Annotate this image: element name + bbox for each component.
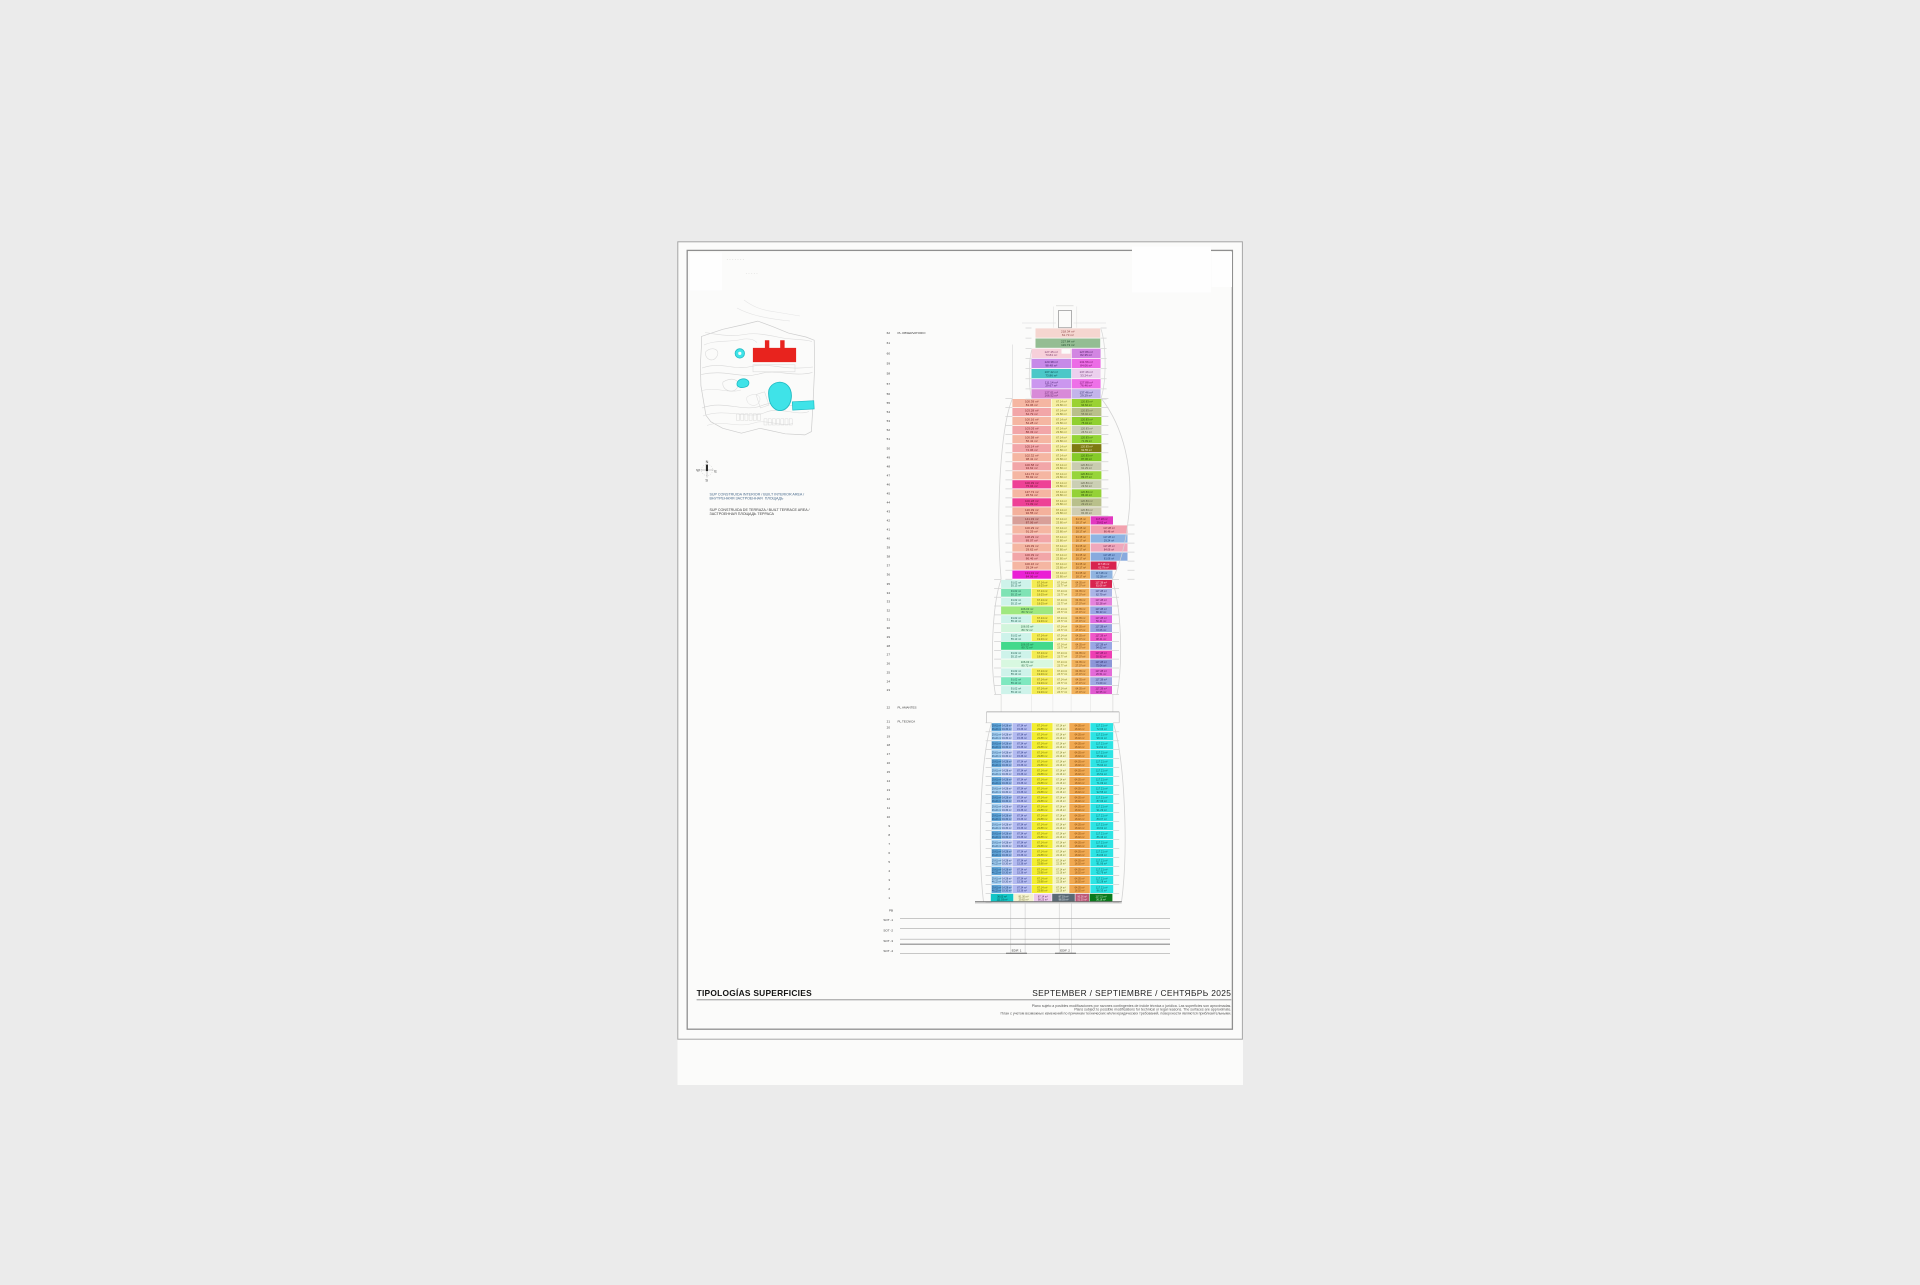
svg-text:14: 14 bbox=[887, 779, 891, 783]
svg-text:18.02 m²: 18.02 m² bbox=[1075, 737, 1085, 740]
svg-text:14.28 m²: 14.28 m² bbox=[1002, 752, 1012, 755]
svg-text:64.35 m²: 64.35 m² bbox=[1075, 734, 1085, 737]
svg-text:87.34 m²: 87.34 m² bbox=[1017, 752, 1027, 755]
svg-text:87.34 m²: 87.34 m² bbox=[1017, 779, 1027, 782]
svg-text:22.16 m²: 22.16 m² bbox=[1056, 800, 1066, 803]
svg-text:27.07 m²: 27.07 m² bbox=[1075, 664, 1085, 667]
svg-text:87.34 m²: 87.34 m² bbox=[1017, 877, 1027, 880]
svg-text:64.35 m²: 64.35 m² bbox=[1075, 824, 1085, 827]
svg-text:36.03 m²: 36.03 m² bbox=[997, 895, 1007, 898]
svg-text:64.35 m²: 64.35 m² bbox=[1075, 806, 1085, 809]
svg-text:29.61 m²: 29.61 m² bbox=[992, 770, 1002, 773]
svg-text:22: 22 bbox=[887, 706, 891, 710]
svg-text:18.02 m²: 18.02 m² bbox=[1075, 836, 1085, 839]
svg-text:64.35 m²: 64.35 m² bbox=[1075, 652, 1085, 655]
svg-text:47: 47 bbox=[887, 473, 891, 477]
svg-text:27.07 m²: 27.07 m² bbox=[1075, 638, 1085, 641]
svg-text:14.28 m²: 14.28 m² bbox=[1002, 806, 1012, 809]
svg-text:15.36 m²: 15.36 m² bbox=[1017, 764, 1027, 767]
svg-text:PL.AMANTES: PL.AMANTES bbox=[898, 706, 917, 710]
svg-text:46.22 m²: 46.22 m² bbox=[992, 728, 1002, 731]
svg-text:EDIF. 1: EDIF. 1 bbox=[1012, 949, 1022, 953]
svg-text:91.29 m²: 91.29 m² bbox=[1026, 529, 1038, 533]
svg-text:64.35 m²: 64.35 m² bbox=[1075, 725, 1085, 728]
svg-text:22.16 m²: 22.16 m² bbox=[1056, 872, 1066, 875]
svg-text:22.16 m²: 22.16 m² bbox=[1056, 791, 1066, 794]
svg-text:87.34 m²: 87.34 m² bbox=[1017, 806, 1027, 809]
svg-text:14.28 m²: 14.28 m² bbox=[1002, 788, 1012, 791]
svg-text:87.34 m²: 87.34 m² bbox=[1017, 859, 1027, 862]
svg-text:80.72 m²: 80.72 m² bbox=[1021, 646, 1032, 650]
svg-text:15.36 m²: 15.36 m² bbox=[1017, 827, 1027, 830]
svg-text:67.14 m²: 67.14 m² bbox=[1056, 859, 1066, 862]
svg-text:23.77 m²: 23.77 m² bbox=[1057, 620, 1067, 623]
svg-text:46.22 m²: 46.22 m² bbox=[992, 863, 1002, 866]
svg-text:29.61 m²: 29.61 m² bbox=[992, 815, 1002, 818]
svg-text:67.14 m²: 67.14 m² bbox=[1056, 761, 1066, 764]
svg-text:15.36 m²: 15.36 m² bbox=[1017, 755, 1027, 758]
svg-text:64.35 m²: 64.35 m² bbox=[1075, 815, 1085, 818]
svg-text:18.02 m²: 18.02 m² bbox=[1075, 827, 1085, 830]
svg-text:19.30 m²: 19.30 m² bbox=[1002, 800, 1012, 803]
svg-text:27.07 m²: 27.07 m² bbox=[1075, 682, 1085, 685]
svg-text:64.35 m²: 64.35 m² bbox=[1075, 761, 1085, 764]
svg-text:61.73 m²: 61.73 m² bbox=[1062, 333, 1074, 337]
svg-text:27.07 m²: 27.07 m² bbox=[1075, 691, 1085, 694]
svg-text:·····: ····· bbox=[745, 269, 758, 278]
svg-text:14.28 m²: 14.28 m² bbox=[1002, 797, 1012, 800]
svg-text:92.55 m²: 92.55 m² bbox=[1026, 511, 1038, 515]
svg-text:64.35 m²: 64.35 m² bbox=[1075, 851, 1085, 854]
svg-text:29.61 m²: 29.61 m² bbox=[992, 824, 1002, 827]
svg-text:PL.OBSERVATORIO: PL.OBSERVATORIO bbox=[898, 331, 927, 335]
svg-text:29.61 m²: 29.61 m² bbox=[992, 743, 1002, 746]
svg-text:67.14 m²: 67.14 m² bbox=[1056, 725, 1066, 728]
svg-text:64.35 m²: 64.35 m² bbox=[1075, 670, 1085, 673]
svg-text:46.22 m²: 46.22 m² bbox=[992, 755, 1002, 758]
svg-text:46.22 m²: 46.22 m² bbox=[992, 764, 1002, 767]
svg-text:19: 19 bbox=[887, 734, 891, 738]
svg-text:22.16 m²: 22.16 m² bbox=[1056, 845, 1066, 848]
svg-text:SOT -4: SOT -4 bbox=[883, 949, 893, 953]
svg-text:67.14 m²: 67.14 m² bbox=[1057, 661, 1067, 664]
svg-text:29.61 m²: 29.61 m² bbox=[992, 734, 1002, 737]
svg-text:64.35 m²: 64.35 m² bbox=[1075, 859, 1085, 862]
svg-text:67.14 m²: 67.14 m² bbox=[1057, 643, 1067, 646]
svg-text:PL.TECNICA: PL.TECNICA bbox=[898, 719, 916, 723]
svg-text:26.51 m²: 26.51 m² bbox=[1026, 493, 1038, 497]
svg-text:67.14 m²: 67.14 m² bbox=[1056, 752, 1066, 755]
svg-text:87.34 m²: 87.34 m² bbox=[1017, 842, 1027, 845]
svg-text:18.02 m²: 18.02 m² bbox=[1075, 764, 1085, 767]
svg-text:29.61 m²: 29.61 m² bbox=[992, 779, 1002, 782]
svg-text:14.28 m²: 14.28 m² bbox=[1002, 761, 1012, 764]
svg-text:15.36 m²: 15.36 m² bbox=[1017, 818, 1027, 821]
svg-text:29.61 m²: 29.61 m² bbox=[992, 752, 1002, 755]
svg-text:67.14 m²: 67.14 m² bbox=[1056, 779, 1066, 782]
svg-text:117.21 m²: 117.21 m² bbox=[1095, 895, 1106, 898]
svg-text:64.35 m²: 64.35 m² bbox=[1075, 886, 1085, 889]
svg-text:67.14 m²: 67.14 m² bbox=[1056, 797, 1066, 800]
svg-text:64.35 m²: 64.35 m² bbox=[1075, 617, 1085, 620]
svg-text:17: 17 bbox=[887, 752, 891, 756]
svg-text:14.28 m²: 14.28 m² bbox=[1002, 725, 1012, 728]
svg-text:29.67 m²: 29.67 m² bbox=[1045, 384, 1057, 388]
svg-text:SEPTEMBER / SEPTIEMBRE / СЕНТЯ: SEPTEMBER / SEPTIEMBRE / СЕНТЯБРЬ 2025 bbox=[1032, 988, 1231, 998]
svg-text:22.16 m²: 22.16 m² bbox=[1056, 755, 1066, 758]
svg-text:19.30 m²: 19.30 m² bbox=[1002, 737, 1012, 740]
svg-text:98.41 m²: 98.41 m² bbox=[1026, 457, 1038, 461]
svg-text:13: 13 bbox=[887, 788, 891, 792]
svg-text:18.02 m²: 18.02 m² bbox=[1075, 755, 1085, 758]
svg-text:57: 57 bbox=[887, 382, 891, 386]
svg-text:55.92 m²: 55.92 m² bbox=[1026, 475, 1038, 479]
svg-text:46.22 m²: 46.22 m² bbox=[992, 809, 1002, 812]
svg-text:19.30 m²: 19.30 m² bbox=[1002, 728, 1012, 731]
svg-text:67.14 m²: 67.14 m² bbox=[1057, 635, 1067, 638]
svg-text:14.28 m²: 14.28 m² bbox=[1002, 734, 1012, 737]
svg-text:119.73 m²: 119.73 m² bbox=[1061, 343, 1074, 347]
svg-text:46: 46 bbox=[887, 482, 891, 486]
svg-text:80.72 m²: 80.72 m² bbox=[1021, 610, 1032, 614]
svg-text:21: 21 bbox=[887, 719, 891, 723]
svg-text:49: 49 bbox=[887, 455, 891, 459]
svg-text:19.30 m²: 19.30 m² bbox=[1002, 791, 1012, 794]
svg-text:59: 59 bbox=[887, 362, 891, 366]
svg-text:67.14 m²: 67.14 m² bbox=[1056, 851, 1066, 854]
svg-text:ЗАСТРОЕННАЯ ПЛОЩАДЬ ТЕРРАСА: ЗАСТРОЕННАЯ ПЛОЩАДЬ ТЕРРАСА bbox=[710, 512, 775, 516]
svg-text:19.30 m²: 19.30 m² bbox=[1002, 827, 1012, 830]
svg-text:64.35 m²: 64.35 m² bbox=[1075, 752, 1085, 755]
svg-text:34: 34 bbox=[887, 591, 891, 595]
svg-text:14.28 m²: 14.28 m² bbox=[1002, 770, 1012, 773]
svg-text:15.36 m²: 15.36 m² bbox=[1017, 863, 1027, 866]
svg-text:46.22 m²: 46.22 m² bbox=[992, 791, 1002, 794]
svg-text:E: E bbox=[714, 469, 717, 473]
svg-text:18.02 m²: 18.02 m² bbox=[1075, 845, 1085, 848]
svg-text:14.28 m²: 14.28 m² bbox=[1002, 833, 1012, 836]
svg-text:67.14 m²: 67.14 m² bbox=[1056, 788, 1066, 791]
svg-text:31: 31 bbox=[887, 617, 891, 621]
svg-text:41: 41 bbox=[887, 528, 891, 532]
svg-text:23.77 m²: 23.77 m² bbox=[1057, 594, 1067, 597]
svg-text:29.61 m²: 29.61 m² bbox=[992, 761, 1002, 764]
svg-text:25: 25 bbox=[887, 670, 891, 674]
svg-text:19.30 m²: 19.30 m² bbox=[1002, 764, 1012, 767]
svg-text:23.77 m²: 23.77 m² bbox=[1057, 629, 1067, 632]
svg-text:18.02 m²: 18.02 m² bbox=[1075, 881, 1085, 884]
svg-text:73.86 m²: 73.86 m² bbox=[1045, 373, 1057, 377]
svg-text:SUP CONSTRUIDA DE TERRAZA / BU: SUP CONSTRUIDA DE TERRAZA / BUILT TERRAC… bbox=[710, 508, 811, 512]
svg-text:64.35 m²: 64.35 m² bbox=[1075, 833, 1085, 836]
svg-text:46.22 m²: 46.22 m² bbox=[992, 854, 1002, 857]
svg-text:64.35 m²: 64.35 m² bbox=[1075, 626, 1085, 629]
svg-text:67.14 m²: 67.14 m² bbox=[1057, 670, 1067, 673]
svg-text:90.26 m²: 90.26 m² bbox=[1077, 895, 1087, 898]
svg-text:14.28 m²: 14.28 m² bbox=[1002, 877, 1012, 880]
svg-text:29.61 m²: 29.61 m² bbox=[992, 806, 1002, 809]
svg-text:53: 53 bbox=[887, 419, 891, 423]
svg-text:64.35 m²: 64.35 m² bbox=[1075, 770, 1085, 773]
svg-text:23.77 m²: 23.77 m² bbox=[1057, 673, 1067, 676]
svg-text:15.36 m²: 15.36 m² bbox=[1017, 872, 1027, 875]
svg-text:61: 61 bbox=[887, 341, 891, 345]
svg-text:18.02 m²: 18.02 m² bbox=[1075, 800, 1085, 803]
svg-text:14.28 m²: 14.28 m² bbox=[1002, 859, 1012, 862]
svg-text:67.14 m²: 67.14 m² bbox=[1057, 688, 1067, 691]
svg-text:86.33 m²: 86.33 m² bbox=[1026, 430, 1038, 434]
svg-text:SOT -3: SOT -3 bbox=[883, 939, 893, 943]
svg-text:23.77 m²: 23.77 m² bbox=[1057, 691, 1067, 694]
svg-text:23.77 m²: 23.77 m² bbox=[1057, 602, 1067, 605]
svg-text:46.22 m²: 46.22 m² bbox=[992, 836, 1002, 839]
svg-text:18.02 m²: 18.02 m² bbox=[1075, 863, 1085, 866]
svg-text:84.06 m²: 84.06 m² bbox=[1080, 363, 1092, 367]
svg-text:TIPOLOGÍAS SUPERFICIES: TIPOLOGÍAS SUPERFICIES bbox=[697, 987, 812, 998]
svg-text:54: 54 bbox=[887, 410, 891, 414]
svg-text:67.14 m²: 67.14 m² bbox=[1057, 652, 1067, 655]
svg-text:87.34 m²: 87.34 m² bbox=[1017, 815, 1027, 818]
svg-text:27.07 m²: 27.07 m² bbox=[1075, 594, 1085, 597]
svg-text:64.35 m²: 64.35 m² bbox=[1075, 877, 1085, 880]
svg-text:19.30 m²: 19.30 m² bbox=[1002, 773, 1012, 776]
svg-text:80.72 m²: 80.72 m² bbox=[1021, 628, 1032, 632]
svg-text:18: 18 bbox=[887, 743, 891, 747]
svg-text:46.22 m²: 46.22 m² bbox=[992, 872, 1002, 875]
svg-text:19.30 m²: 19.30 m² bbox=[1002, 809, 1012, 812]
svg-text:14.28 m²: 14.28 m² bbox=[1002, 815, 1012, 818]
svg-text:29.61 m²: 29.61 m² bbox=[992, 842, 1002, 845]
svg-text:166.52 m²: 166.52 m² bbox=[1045, 394, 1059, 398]
svg-text:98.48 m²: 98.48 m² bbox=[1045, 363, 1057, 367]
svg-text:67.14 m²: 67.14 m² bbox=[1057, 617, 1067, 620]
svg-text:46.22 m²: 46.22 m² bbox=[992, 827, 1002, 830]
svg-text:S: S bbox=[705, 478, 708, 482]
svg-text:73.84 m²: 73.84 m² bbox=[1045, 353, 1057, 357]
svg-text:23.77 m²: 23.77 m² bbox=[1057, 611, 1067, 614]
svg-text:23.77 m²: 23.77 m² bbox=[1057, 664, 1067, 667]
svg-text:67.14 m²: 67.14 m² bbox=[1057, 679, 1067, 682]
svg-text:18.02 m²: 18.02 m² bbox=[1075, 746, 1085, 749]
svg-text:82.35 m²: 82.35 m² bbox=[1080, 353, 1092, 357]
svg-text:67.14 m²: 67.14 m² bbox=[1056, 824, 1066, 827]
svg-text:19.30 m²: 19.30 m² bbox=[1002, 890, 1012, 893]
svg-text:46.22 m²: 46.22 m² bbox=[992, 818, 1002, 821]
svg-text:27.07 m²: 27.07 m² bbox=[1075, 647, 1085, 650]
svg-text:64.35 m²: 64.35 m² bbox=[1075, 608, 1085, 611]
svg-text:87.34 m²: 87.34 m² bbox=[1017, 725, 1027, 728]
svg-text:15: 15 bbox=[887, 770, 891, 774]
svg-text:27.07 m²: 27.07 m² bbox=[1075, 656, 1085, 659]
svg-text:19.30 m²: 19.30 m² bbox=[1002, 782, 1012, 785]
svg-text:33: 33 bbox=[887, 600, 891, 604]
svg-text:81.06 m²: 81.06 m² bbox=[1026, 403, 1038, 407]
svg-text:46.22 m²: 46.22 m² bbox=[992, 782, 1002, 785]
svg-text:46.22 m²: 46.22 m² bbox=[992, 890, 1002, 893]
svg-text:89.07 m²: 89.07 m² bbox=[1026, 538, 1038, 542]
svg-text:67.14 m²: 67.14 m² bbox=[1057, 599, 1067, 602]
svg-text:22.16 m²: 22.16 m² bbox=[1056, 863, 1066, 866]
svg-text:18.02 m²: 18.02 m² bbox=[1075, 809, 1085, 812]
svg-text:29.61 m²: 29.61 m² bbox=[992, 851, 1002, 854]
svg-text:86.46 m²: 86.46 m² bbox=[1026, 556, 1038, 560]
svg-text:64.35 m²: 64.35 m² bbox=[1075, 868, 1085, 871]
svg-text:14.28 m²: 14.28 m² bbox=[1002, 851, 1012, 854]
svg-text:19.30 m²: 19.30 m² bbox=[1002, 863, 1012, 866]
svg-text:50: 50 bbox=[887, 446, 891, 450]
svg-text:67.14 m²: 67.14 m² bbox=[1057, 581, 1067, 584]
svg-text:15.36 m²: 15.36 m² bbox=[1017, 782, 1027, 785]
svg-text:22.16 m²: 22.16 m² bbox=[1056, 827, 1066, 830]
svg-text:87.06 m²: 87.06 m² bbox=[1026, 520, 1038, 524]
svg-text:27.07 m²: 27.07 m² bbox=[1075, 620, 1085, 623]
svg-text:76.46 m²: 76.46 m² bbox=[1080, 384, 1092, 388]
svg-text:71.09 m²: 71.09 m² bbox=[1026, 502, 1038, 506]
svg-text:67.14 m²: 67.14 m² bbox=[1057, 626, 1067, 629]
svg-text:SOT -2: SOT -2 bbox=[883, 928, 893, 932]
svg-text:14.28 m²: 14.28 m² bbox=[1002, 779, 1012, 782]
svg-text:EDIF. 2: EDIF. 2 bbox=[1060, 949, 1070, 953]
svg-text:14.28 m²: 14.28 m² bbox=[1002, 824, 1012, 827]
svg-text:67.14 m²: 67.14 m² bbox=[1056, 877, 1066, 880]
svg-text:64.35 m²: 64.35 m² bbox=[1075, 779, 1085, 782]
svg-text:22.16 m²: 22.16 m² bbox=[1056, 764, 1066, 767]
svg-text:46.22 m²: 46.22 m² bbox=[992, 773, 1002, 776]
svg-text:22.16 m²: 22.16 m² bbox=[1056, 782, 1066, 785]
svg-text:84.06 m²: 84.06 m² bbox=[1026, 574, 1038, 578]
svg-text:64.35 m²: 64.35 m² bbox=[1075, 581, 1085, 584]
svg-text:14.28 m²: 14.28 m² bbox=[1002, 842, 1012, 845]
svg-text:W: W bbox=[696, 468, 700, 472]
svg-text:28: 28 bbox=[887, 644, 891, 648]
svg-text:22.16 m²: 22.16 m² bbox=[1056, 890, 1066, 893]
svg-text:15.36 m²: 15.36 m² bbox=[1017, 881, 1027, 884]
svg-text:81.30 m²: 81.30 m² bbox=[1019, 895, 1029, 898]
svg-text:56.41 m²: 56.41 m² bbox=[1026, 439, 1038, 443]
svg-text:94.62 m²: 94.62 m² bbox=[1026, 466, 1038, 470]
svg-text:87.34 m²: 87.34 m² bbox=[1017, 797, 1027, 800]
svg-text:19.30 m²: 19.30 m² bbox=[1002, 854, 1012, 857]
svg-text:18.02 m²: 18.02 m² bbox=[1075, 818, 1085, 821]
svg-text:29.61 m²: 29.61 m² bbox=[992, 868, 1002, 871]
svg-text:18.02 m²: 18.02 m² bbox=[1075, 782, 1085, 785]
svg-text:22.16 m²: 22.16 m² bbox=[1056, 881, 1066, 884]
svg-text:15.36 m²: 15.36 m² bbox=[1017, 890, 1027, 893]
svg-text:64.35 m²: 64.35 m² bbox=[1075, 842, 1085, 845]
svg-text:87.34 m²: 87.34 m² bbox=[1017, 761, 1027, 764]
svg-text:27: 27 bbox=[887, 653, 891, 657]
svg-text:16: 16 bbox=[887, 761, 891, 765]
svg-text:52: 52 bbox=[887, 428, 891, 432]
svg-text:29.61 m²: 29.61 m² bbox=[992, 859, 1002, 862]
svg-text:PB: PB bbox=[889, 908, 893, 912]
svg-text:19.30 m²: 19.30 m² bbox=[1002, 746, 1012, 749]
svg-text:87.34 m²: 87.34 m² bbox=[1017, 824, 1027, 827]
svg-text:46.22 m²: 46.22 m² bbox=[992, 800, 1002, 803]
svg-text:56: 56 bbox=[887, 392, 891, 396]
svg-text:35: 35 bbox=[887, 582, 891, 586]
svg-text:22.16 m²: 22.16 m² bbox=[1056, 746, 1066, 749]
svg-text:22.16 m²: 22.16 m² bbox=[1056, 728, 1066, 731]
svg-text:67.14 m²: 67.14 m² bbox=[1056, 806, 1066, 809]
svg-text:22.16 m²: 22.16 m² bbox=[1056, 773, 1066, 776]
svg-text:29.62 m²: 29.62 m² bbox=[1026, 547, 1038, 551]
svg-text:19.30 m²: 19.30 m² bbox=[1002, 881, 1012, 884]
svg-text:40: 40 bbox=[887, 537, 891, 541]
svg-text:23.77 m²: 23.77 m² bbox=[1057, 638, 1067, 641]
svg-text:15.36 m²: 15.36 m² bbox=[1017, 845, 1027, 848]
svg-text:87.34 m²: 87.34 m² bbox=[1017, 770, 1027, 773]
svg-text:15.36 m²: 15.36 m² bbox=[1017, 737, 1027, 740]
svg-text:23: 23 bbox=[887, 688, 891, 692]
svg-text:29.61 m²: 29.61 m² bbox=[992, 797, 1002, 800]
svg-text:19.30 m²: 19.30 m² bbox=[1002, 755, 1012, 758]
svg-text:67.14 m²: 67.14 m² bbox=[1056, 842, 1066, 845]
svg-text:67.14 m²: 67.14 m² bbox=[1057, 590, 1067, 593]
svg-text:11: 11 bbox=[887, 806, 890, 810]
svg-text:ВНУТРЕННЯЯ ЗАСТРОЕННАЯ ПЛОЩАД: ВНУТРЕННЯЯ ЗАСТРОЕННАЯ ПЛОЩАДЬ bbox=[710, 496, 784, 500]
svg-text:67.14 m²: 67.14 m² bbox=[1056, 734, 1066, 737]
svg-text:15.36 m²: 15.36 m² bbox=[1017, 854, 1027, 857]
svg-text:10: 10 bbox=[887, 815, 891, 819]
svg-text:30: 30 bbox=[887, 626, 891, 630]
svg-text:87.34 m²: 87.34 m² bbox=[1017, 743, 1027, 746]
svg-text:Plans subject to possible modi: Plans subject to possible modifications … bbox=[1074, 1008, 1231, 1012]
svg-text:67.14 m²: 67.14 m² bbox=[1056, 815, 1066, 818]
svg-text:15.36 m²: 15.36 m² bbox=[1017, 773, 1027, 776]
svg-text:·······: ······· bbox=[726, 255, 745, 264]
svg-text:46.22 m²: 46.22 m² bbox=[992, 737, 1002, 740]
svg-text:36: 36 bbox=[887, 573, 891, 577]
svg-text:52.28 m²: 52.28 m² bbox=[1026, 421, 1038, 425]
svg-text:N: N bbox=[706, 460, 709, 464]
svg-text:23.77 m²: 23.77 m² bbox=[1057, 682, 1067, 685]
svg-text:19.30 m²: 19.30 m² bbox=[1002, 872, 1012, 875]
svg-text:64.35 m²: 64.35 m² bbox=[1075, 743, 1085, 746]
svg-text:64.35 m²: 64.35 m² bbox=[1075, 661, 1085, 664]
svg-text:46.22 m²: 46.22 m² bbox=[992, 845, 1002, 848]
svg-text:SOT -1: SOT -1 bbox=[883, 918, 893, 922]
svg-text:45: 45 bbox=[887, 491, 891, 495]
svg-text:58: 58 bbox=[887, 372, 891, 376]
svg-text:27.07 m²: 27.07 m² bbox=[1075, 629, 1085, 632]
svg-text:14.28 m²: 14.28 m² bbox=[1002, 886, 1012, 889]
svg-text:15.36 m²: 15.36 m² bbox=[1017, 809, 1027, 812]
svg-text:27.07 m²: 27.07 m² bbox=[1075, 611, 1085, 614]
svg-text:19.30 m²: 19.30 m² bbox=[1002, 845, 1012, 848]
svg-text:29.61 m²: 29.61 m² bbox=[992, 725, 1002, 728]
svg-text:67.14 m²: 67.14 m² bbox=[1057, 608, 1067, 611]
svg-text:SUP CONSTRUIDA INTERIOR / BUIL: SUP CONSTRUIDA INTERIOR / BUILT INTERIOR… bbox=[710, 493, 806, 497]
svg-text:23.77 m²: 23.77 m² bbox=[1057, 585, 1067, 588]
svg-text:22.16 m²: 22.16 m² bbox=[1056, 818, 1066, 821]
svg-text:87.34 m²: 87.34 m² bbox=[1017, 833, 1027, 836]
svg-text:55: 55 bbox=[887, 401, 891, 405]
svg-text:67.14 m²: 67.14 m² bbox=[1056, 833, 1066, 836]
svg-text:64.35 m²: 64.35 m² bbox=[1075, 635, 1085, 638]
svg-text:Plano sujeto a posibles modifi: Plano sujeto a posibles modificaciones p… bbox=[1032, 1004, 1232, 1008]
svg-text:14.28 m²: 14.28 m² bbox=[1002, 868, 1012, 871]
svg-text:64.35 m²: 64.35 m² bbox=[1075, 797, 1085, 800]
svg-text:23.77 m²: 23.77 m² bbox=[1057, 647, 1067, 650]
svg-text:67.14 m²: 67.14 m² bbox=[1056, 886, 1066, 889]
svg-text:60: 60 bbox=[887, 351, 891, 355]
svg-text:15.36 m²: 15.36 m² bbox=[1017, 800, 1027, 803]
svg-text:23.77 m²: 23.77 m² bbox=[1057, 656, 1067, 659]
svg-text:27.07 m²: 27.07 m² bbox=[1075, 602, 1085, 605]
svg-text:32: 32 bbox=[887, 609, 891, 613]
svg-text:15.36 m²: 15.36 m² bbox=[1017, 746, 1027, 749]
